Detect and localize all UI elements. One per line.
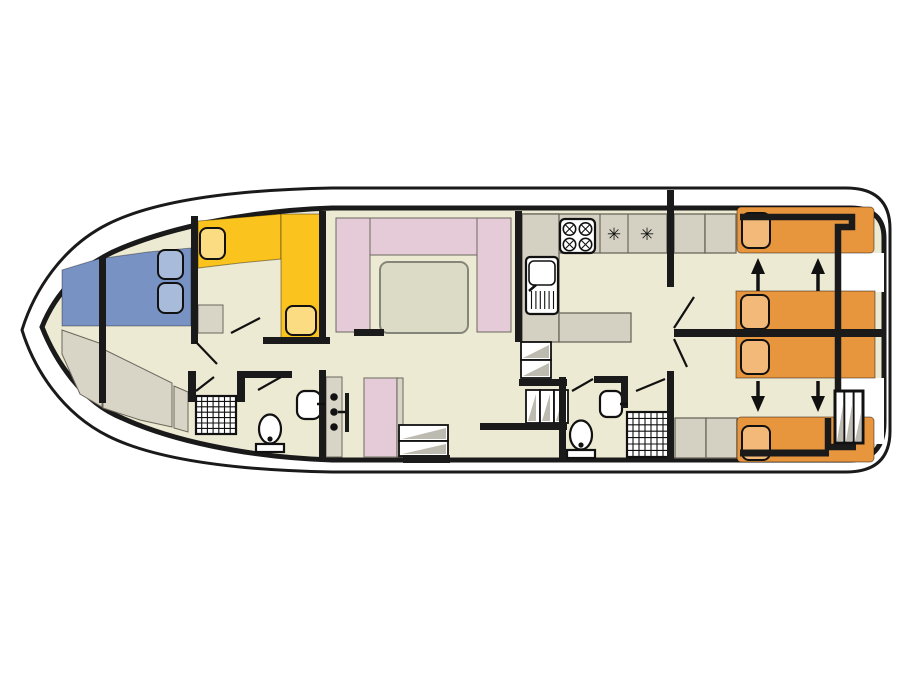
appliance-symbol: ✳ [640,225,654,245]
toilet-flush [578,442,583,447]
galley-sink [526,257,558,314]
toilet-base [567,450,595,458]
wall [354,329,384,336]
pillow [200,228,225,259]
wall [319,370,326,458]
cabinet [706,418,737,458]
cabinet [674,214,705,253]
wardrobe-cabinet [326,377,342,457]
floorplan-canvas: ✳ ✳ [0,0,904,678]
wall [515,211,522,342]
wall [480,423,567,430]
toilet-base [256,444,284,452]
boat-floorplan: ✳ ✳ [0,0,904,678]
toilet-flush [267,436,272,441]
appliance-symbol: ✳ [607,225,621,245]
cabinet [705,214,736,253]
nightstand [198,305,223,333]
stern-ladder [835,391,863,443]
pillow [741,340,769,374]
pillow [158,250,183,279]
wall [99,257,106,403]
pillow [286,306,316,335]
wall [319,211,326,337]
wall [345,393,349,432]
wardrobe [326,377,342,457]
wall [559,377,566,458]
wall [519,379,567,386]
sofa-left [336,218,370,332]
wall [667,190,674,287]
hob [560,219,595,253]
locker [174,386,188,432]
wall-centerline [674,329,885,337]
single-berth [364,378,397,457]
cabinet [675,418,706,458]
pillow [741,295,769,329]
wall [188,371,196,402]
hook [330,393,338,401]
hook [330,423,338,431]
hook [330,408,338,416]
wall [667,371,674,459]
wall [237,371,245,402]
floor-hatch [403,455,450,463]
saloon [336,218,511,333]
sink-basin [529,261,555,285]
wall [263,337,330,344]
counter-peninsula [559,313,631,342]
pillow [158,283,183,313]
dinette-table [380,262,468,333]
wall [245,371,292,378]
sofa-top [370,218,478,255]
washbasin [600,391,622,417]
sofa-right [477,218,511,332]
deck-patch [841,253,884,292]
wall [191,216,198,344]
